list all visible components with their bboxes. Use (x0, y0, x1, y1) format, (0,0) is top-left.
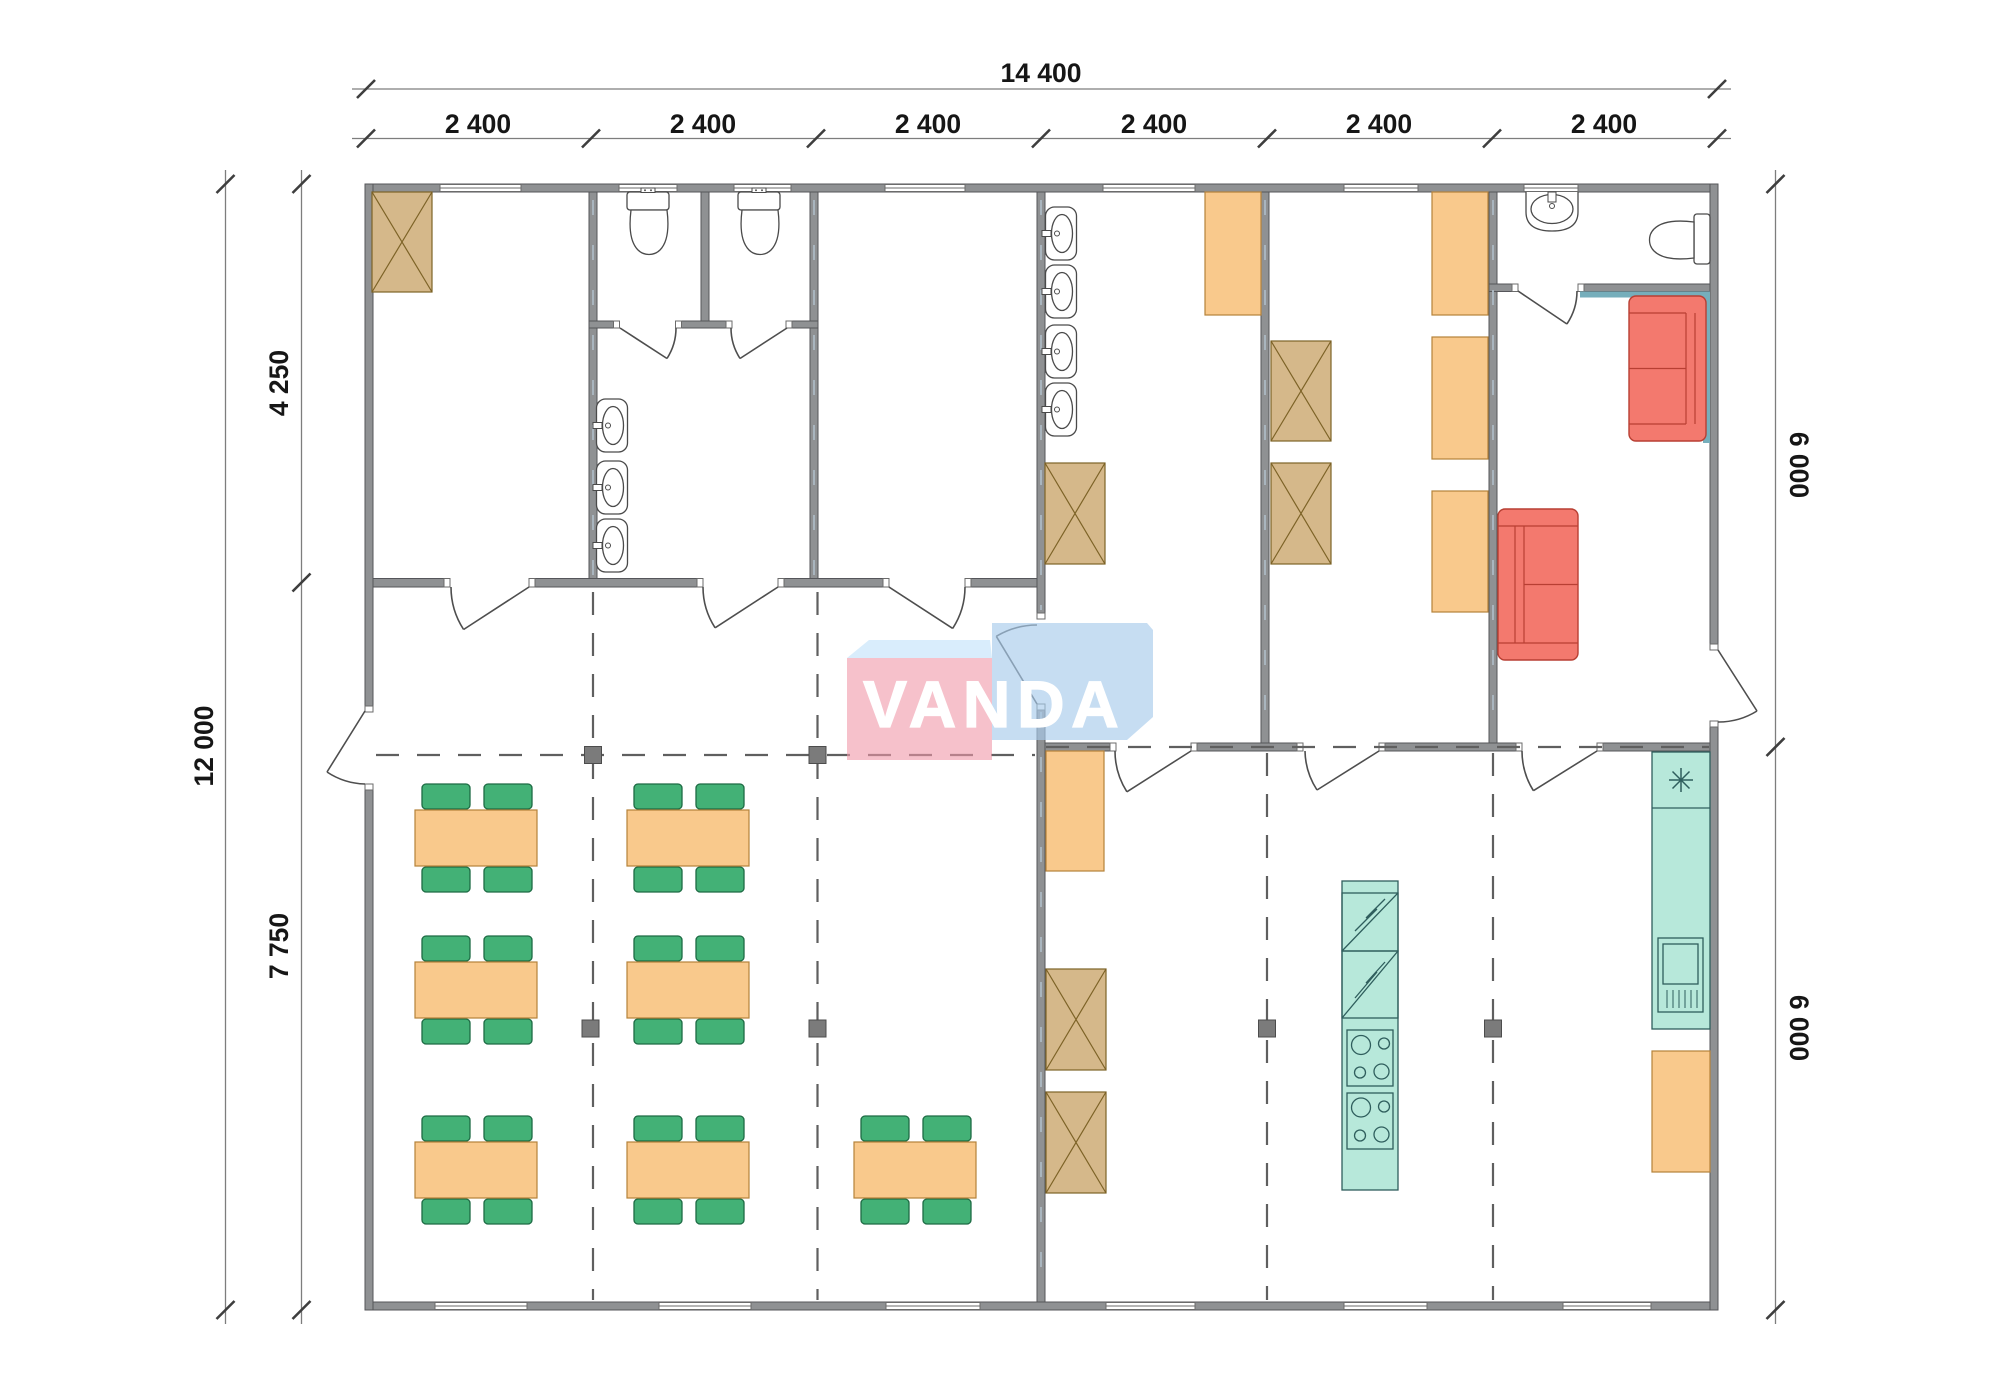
svg-text:2 400: 2 400 (445, 109, 511, 139)
svg-text:4 250: 4 250 (264, 350, 294, 416)
svg-text:14 400: 14 400 (1000, 58, 1081, 88)
svg-text:VANDA: VANDA (863, 667, 1125, 741)
svg-text:6 000: 6 000 (1784, 995, 1814, 1061)
svg-text:2 400: 2 400 (1346, 109, 1412, 139)
svg-text:6 000: 6 000 (1784, 432, 1814, 498)
svg-text:2 400: 2 400 (1571, 109, 1637, 139)
svg-text:2 400: 2 400 (895, 109, 961, 139)
svg-text:12 000: 12 000 (189, 705, 219, 786)
svg-text:2 400: 2 400 (670, 109, 736, 139)
svg-text:7 750: 7 750 (264, 913, 294, 979)
svg-text:2 400: 2 400 (1121, 109, 1187, 139)
